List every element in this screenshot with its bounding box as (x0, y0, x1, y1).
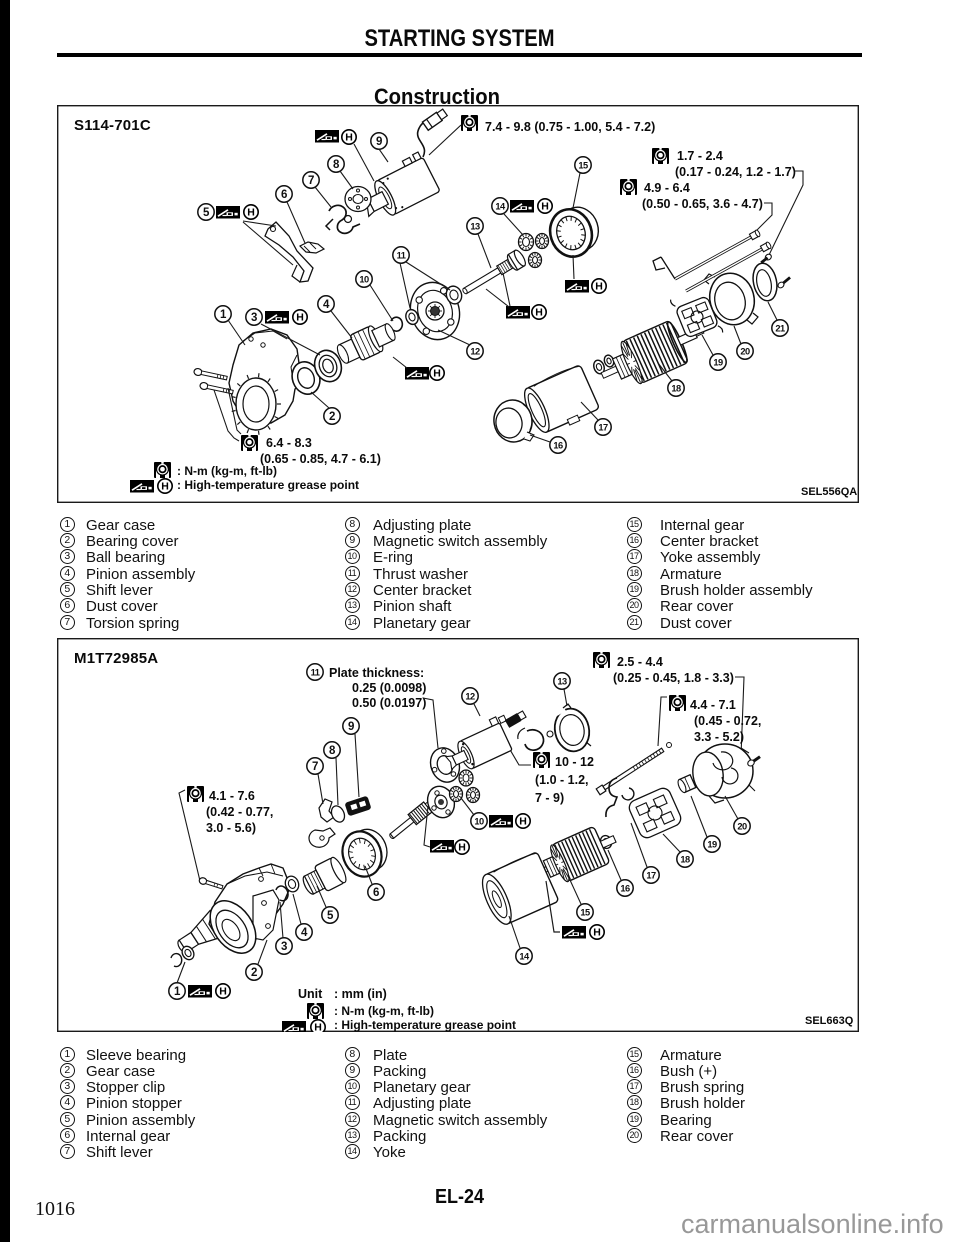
svg-text:21: 21 (775, 323, 785, 333)
svg-text:3: 3 (251, 312, 257, 324)
svg-text:: High-temperature grease poin: : High-temperature grease point (334, 1018, 516, 1032)
svg-text:11: 11 (397, 250, 406, 260)
svg-text:: High-temperature grease poin: : High-temperature grease point (177, 478, 359, 492)
svg-text:: N-m (kg-m, ft-lb): : N-m (kg-m, ft-lb) (177, 464, 277, 478)
svg-text:6: 6 (373, 887, 379, 899)
svg-text:4.1 - 7.6: 4.1 - 7.6 (209, 789, 255, 803)
svg-text:SEL663Q: SEL663Q (805, 1015, 854, 1027)
svg-text:(0.45 - 0.72,: (0.45 - 0.72, (694, 714, 761, 728)
svg-text:1.7 - 2.4: 1.7 - 2.4 (677, 149, 723, 163)
svg-text:7: 7 (312, 761, 318, 773)
svg-text:H: H (535, 307, 543, 319)
svg-text:(1.0 - 1.2,: (1.0 - 1.2, (535, 773, 589, 787)
svg-text:Plate thickness:: Plate thickness: (329, 666, 424, 680)
svg-text:0.25 (0.0098): 0.25 (0.0098) (352, 681, 426, 695)
svg-text:H: H (219, 986, 227, 998)
svg-text:17: 17 (598, 422, 608, 432)
svg-text:10 - 12: 10 - 12 (555, 755, 594, 769)
svg-text:2.5 - 4.4: 2.5 - 4.4 (617, 655, 663, 669)
svg-text:20: 20 (740, 346, 750, 356)
svg-text:: mm (in): : mm (in) (334, 987, 387, 1001)
svg-text:(0.50 - 0.65, 3.6 - 4.7): (0.50 - 0.65, 3.6 - 4.7) (642, 197, 763, 211)
svg-text:4.4 - 7.1: 4.4 - 7.1 (690, 698, 736, 712)
svg-text:: N-m (kg-m, ft-lb): : N-m (kg-m, ft-lb) (334, 1004, 434, 1018)
svg-text:(0.42 - 0.77,: (0.42 - 0.77, (206, 805, 273, 819)
svg-text:(0.17 - 0.24, 1.2 - 1.7): (0.17 - 0.24, 1.2 - 1.7) (675, 165, 796, 179)
svg-text:Unit: Unit (298, 987, 323, 1001)
svg-text:16: 16 (620, 883, 630, 893)
svg-text:4.9 - 6.4: 4.9 - 6.4 (644, 181, 690, 195)
svg-text:2: 2 (251, 967, 257, 979)
svg-text:H: H (541, 201, 549, 213)
svg-text:3.0 - 5.6): 3.0 - 5.6) (206, 821, 256, 835)
svg-text:9: 9 (348, 721, 354, 733)
svg-text:14: 14 (495, 201, 506, 211)
svg-text:7.4 - 9.8 (0.75 - 1.00, 5.4 -: 7.4 - 9.8 (0.75 - 1.00, 5.4 - 7.2) (485, 120, 655, 134)
svg-text:11: 11 (311, 667, 320, 677)
svg-text:20: 20 (737, 821, 747, 831)
svg-text:15: 15 (578, 160, 588, 170)
svg-text:7: 7 (308, 175, 314, 187)
svg-text:SEL556QA: SEL556QA (801, 486, 857, 498)
svg-text:10: 10 (474, 816, 484, 826)
svg-text:16: 16 (553, 440, 563, 450)
svg-text:H: H (247, 207, 255, 219)
svg-text:(0.25 - 0.45, 1.8 - 3.3): (0.25 - 0.45, 1.8 - 3.3) (613, 671, 734, 685)
svg-text:12: 12 (470, 346, 480, 356)
svg-text:7 - 9): 7 - 9) (535, 791, 564, 805)
svg-text:(0.65 - 0.85, 4.7 - 6.1): (0.65 - 0.85, 4.7 - 6.1) (260, 452, 381, 466)
svg-text:17: 17 (646, 870, 656, 880)
svg-text:H: H (345, 132, 353, 144)
svg-text:10: 10 (359, 274, 369, 284)
svg-text:H: H (296, 312, 304, 324)
svg-text:19: 19 (707, 839, 717, 849)
svg-text:19: 19 (713, 357, 723, 367)
svg-text:14: 14 (519, 951, 530, 961)
svg-text:H: H (433, 368, 441, 380)
svg-text:18: 18 (680, 854, 690, 864)
svg-text:3.3 - 5.2): 3.3 - 5.2) (694, 730, 744, 744)
svg-text:H: H (314, 1022, 322, 1032)
svg-text:9: 9 (376, 136, 382, 148)
svg-text:6.4 - 8.3: 6.4 - 8.3 (266, 436, 312, 450)
svg-text:H: H (161, 481, 169, 493)
svg-text:H: H (519, 816, 527, 828)
svg-text:0.50 (0.0197): 0.50 (0.0197) (352, 696, 426, 710)
svg-text:3: 3 (281, 941, 287, 953)
svg-text:12: 12 (465, 691, 475, 701)
svg-text:13: 13 (470, 221, 480, 231)
svg-text:2: 2 (329, 411, 335, 423)
svg-text:6: 6 (281, 189, 287, 201)
svg-text:H: H (593, 927, 601, 939)
svg-text:H: H (595, 281, 603, 293)
svg-text:M1T72985A: M1T72985A (74, 650, 158, 667)
svg-text:15: 15 (580, 907, 590, 917)
svg-text:18: 18 (671, 383, 681, 393)
svg-text:S114-701C: S114-701C (74, 117, 151, 134)
svg-text:13: 13 (557, 676, 567, 686)
svg-text:H: H (458, 842, 466, 854)
